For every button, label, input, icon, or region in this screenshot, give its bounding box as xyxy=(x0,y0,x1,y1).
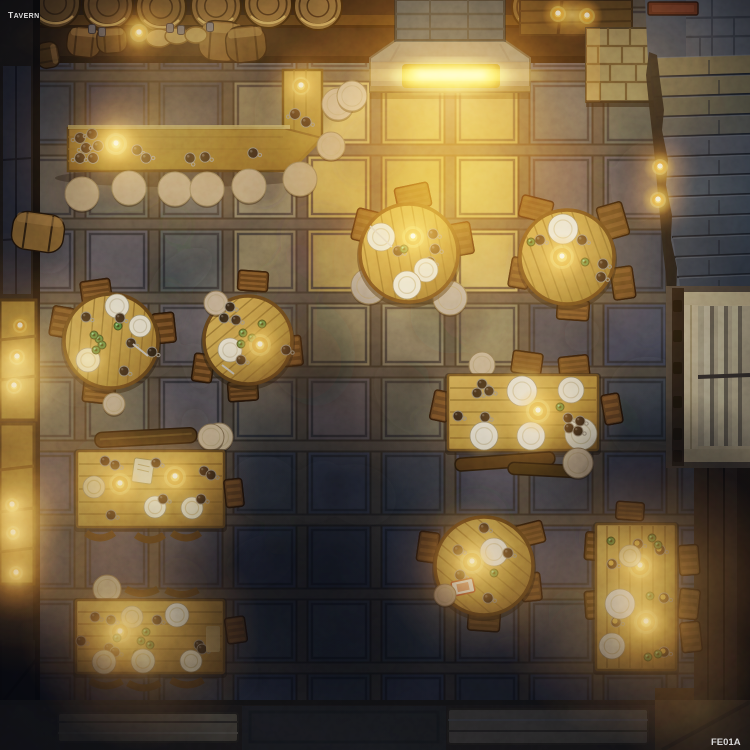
svg-text:FE01A: FE01A xyxy=(711,737,741,748)
